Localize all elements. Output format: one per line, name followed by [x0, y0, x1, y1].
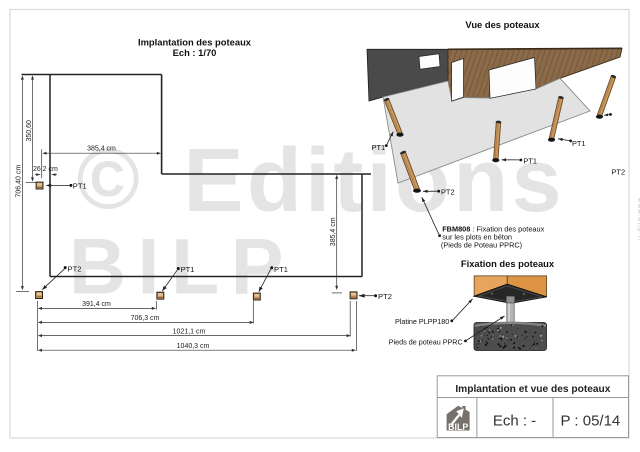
svg-text:PT1: PT1: [572, 139, 586, 148]
svg-text:(Pieds de Poteau PPRC): (Pieds de Poteau PPRC): [441, 241, 522, 250]
svg-text:385,4 cm: 385,4 cm: [330, 217, 337, 246]
svg-text:1040,3 cm: 1040,3 cm: [177, 343, 210, 350]
svg-text:P : 05/14: P : 05/14: [561, 413, 621, 430]
svg-text:Ech : 1/70: Ech : 1/70: [173, 47, 217, 58]
svg-text:350,60: 350,60: [26, 120, 33, 142]
svg-text:PT2: PT2: [441, 188, 455, 197]
svg-text:PT1: PT1: [523, 157, 537, 166]
svg-text:PT1: PT1: [372, 143, 386, 152]
svg-text:PT2: PT2: [612, 167, 626, 176]
svg-text:Platine PLPP180: Platine PLPP180: [395, 317, 449, 326]
svg-text:Implantation et vue des poteau: Implantation et vue des poteaux: [455, 384, 610, 395]
svg-text:Vue des poteaux: Vue des poteaux: [465, 19, 540, 30]
svg-text:www.bilp.fr: www.bilp.fr: [636, 197, 640, 243]
svg-text:706,3 cm: 706,3 cm: [131, 315, 160, 322]
svg-text:PT1: PT1: [274, 265, 288, 274]
svg-text:PT2: PT2: [68, 265, 82, 274]
svg-text:385,4 cm: 385,4 cm: [87, 146, 116, 153]
svg-text:Ech : -: Ech : -: [493, 413, 536, 430]
svg-text:706,40 cm: 706,40 cm: [16, 165, 23, 198]
svg-text:BILP: BILP: [448, 422, 468, 432]
svg-text:Fixation des poteaux: Fixation des poteaux: [461, 258, 555, 269]
svg-text:PT1: PT1: [73, 181, 87, 190]
svg-text:Implantation des poteaux: Implantation des poteaux: [138, 36, 252, 47]
svg-text:1021,1 cm: 1021,1 cm: [173, 328, 206, 335]
svg-text:PT1: PT1: [181, 265, 195, 274]
svg-text:PT2: PT2: [378, 292, 392, 301]
svg-text:26,2 cm: 26,2 cm: [33, 166, 58, 173]
svg-text:391,4 cm: 391,4 cm: [82, 301, 111, 308]
svg-text:Pieds de poteau PPRC: Pieds de poteau PPRC: [389, 337, 463, 346]
